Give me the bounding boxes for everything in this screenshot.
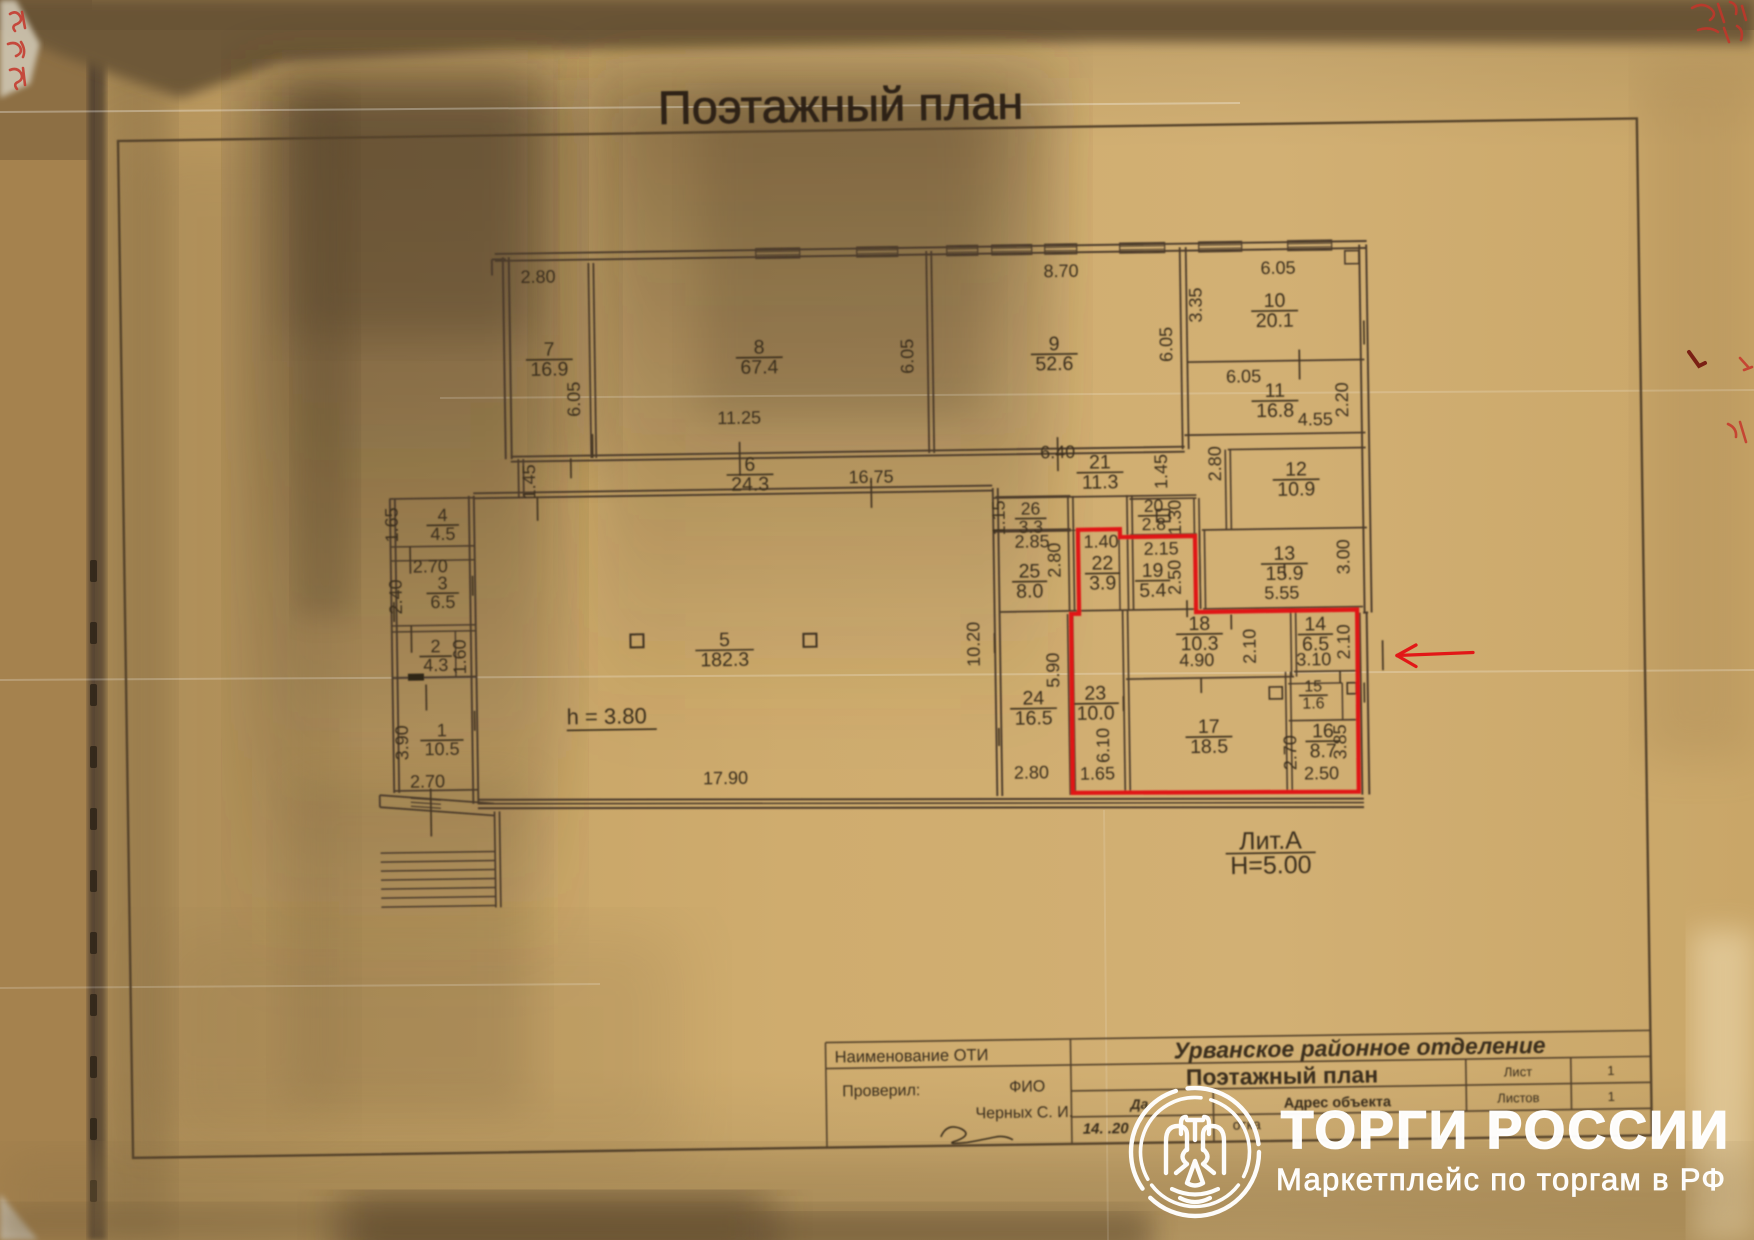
svg-text:ФИО: ФИО [1009, 1078, 1045, 1096]
svg-text:10: 10 [1263, 290, 1285, 312]
svg-text:2.80: 2.80 [520, 267, 555, 288]
svg-text:6.10: 6.10 [1093, 728, 1114, 763]
svg-text:19: 19 [1141, 560, 1163, 582]
svg-text:1.30: 1.30 [1164, 500, 1185, 535]
svg-text:2.10: 2.10 [1239, 629, 1260, 664]
svg-text:2.15: 2.15 [1143, 538, 1178, 559]
svg-text:8.0: 8.0 [1016, 580, 1044, 602]
svg-text:9: 9 [1049, 333, 1060, 355]
svg-text:21: 21 [1089, 451, 1111, 473]
svg-text:6: 6 [744, 454, 755, 476]
svg-text:1.65: 1.65 [381, 507, 402, 542]
svg-text:1.40: 1.40 [1083, 531, 1118, 552]
svg-text:3.10: 3.10 [1296, 649, 1331, 670]
svg-text:2: 2 [430, 636, 440, 656]
svg-text:24: 24 [1022, 687, 1044, 709]
svg-text:3.35: 3.35 [1185, 287, 1206, 322]
svg-text:Маркетплейс по торгам в РФ: Маркетплейс по торгам в РФ [1276, 1162, 1725, 1197]
svg-text:2.10: 2.10 [1333, 624, 1354, 659]
svg-text:3.85: 3.85 [1330, 724, 1351, 759]
svg-text:13: 13 [1273, 543, 1295, 565]
svg-text:18.5: 18.5 [1190, 736, 1228, 759]
svg-text:Поэтажный план: Поэтажный план [657, 76, 1023, 134]
svg-text:11.3: 11.3 [1082, 471, 1119, 494]
svg-text:1.6: 1.6 [1302, 695, 1325, 712]
svg-text:2.70: 2.70 [410, 771, 445, 792]
svg-text:h = 3.80: h = 3.80 [566, 703, 647, 729]
svg-text:6.05: 6.05 [564, 382, 585, 417]
svg-text:3.00: 3.00 [1333, 539, 1354, 574]
svg-text:6.5: 6.5 [430, 592, 455, 612]
svg-text:Наименование ОТИ: Наименование ОТИ [835, 1046, 989, 1066]
svg-text:1.60: 1.60 [449, 639, 470, 674]
svg-text:17.90: 17.90 [703, 768, 748, 789]
svg-text:Урванское районное отделение: Урванское районное отделение [1173, 1032, 1546, 1064]
svg-text:10.9: 10.9 [1277, 478, 1315, 501]
svg-text:10.20: 10.20 [963, 622, 984, 667]
svg-text:20.1: 20.1 [1256, 310, 1294, 333]
svg-text:14: 14 [1304, 613, 1326, 635]
svg-text:12: 12 [1285, 458, 1307, 480]
svg-text:2.40: 2.40 [386, 579, 407, 614]
svg-text:3.9: 3.9 [1089, 572, 1116, 594]
svg-text:5.4: 5.4 [1139, 579, 1167, 601]
svg-text:7: 7 [544, 339, 555, 361]
svg-text:23: 23 [1084, 682, 1106, 704]
svg-text:2.70: 2.70 [413, 556, 448, 577]
svg-text:5.90: 5.90 [1043, 653, 1064, 688]
svg-text:18: 18 [1188, 613, 1210, 635]
svg-text:16.75: 16.75 [848, 467, 893, 488]
svg-text:8: 8 [754, 336, 765, 358]
svg-text:6.05: 6.05 [897, 339, 918, 374]
svg-text:5: 5 [719, 629, 730, 651]
svg-text:1.45: 1.45 [519, 464, 540, 499]
svg-text:6.40: 6.40 [1040, 442, 1075, 463]
svg-text:25: 25 [1018, 560, 1040, 582]
svg-text:8.70: 8.70 [1043, 261, 1078, 282]
svg-text:5.55: 5.55 [1264, 583, 1299, 604]
svg-text:1.15: 1.15 [988, 500, 1009, 535]
svg-text:24.3: 24.3 [731, 473, 769, 496]
svg-text:4: 4 [437, 505, 447, 525]
svg-text:52.6: 52.6 [1035, 353, 1073, 376]
svg-text:2.80: 2.80 [1205, 446, 1226, 481]
svg-text:22: 22 [1091, 552, 1113, 574]
svg-text:Поэтажный план: Поэтажный план [1186, 1061, 1379, 1090]
svg-text:2.8: 2.8 [1141, 514, 1166, 534]
svg-text:10.5: 10.5 [424, 739, 459, 760]
svg-text:10.0: 10.0 [1076, 702, 1114, 725]
svg-text:2.70: 2.70 [1280, 735, 1301, 770]
svg-text:14. .20: 14. .20 [1083, 1120, 1130, 1138]
svg-text:6.05: 6.05 [1156, 327, 1177, 362]
svg-text:1.45: 1.45 [1151, 454, 1172, 489]
svg-text:Черных С. И.: Черных С. И. [975, 1104, 1073, 1122]
svg-text:16.8: 16.8 [1256, 400, 1294, 423]
svg-text:17: 17 [1198, 716, 1220, 738]
svg-text:2.50: 2.50 [1164, 560, 1185, 595]
svg-text:2.80: 2.80 [1044, 542, 1065, 577]
svg-text:2.80: 2.80 [1014, 762, 1049, 783]
svg-text:Проверил:: Проверил: [842, 1082, 920, 1100]
svg-text:4.90: 4.90 [1179, 650, 1214, 671]
svg-text:11: 11 [1265, 380, 1286, 402]
svg-text:182.3: 182.3 [700, 649, 749, 672]
svg-text:11.25: 11.25 [717, 407, 761, 428]
svg-text:4.55: 4.55 [1298, 409, 1333, 430]
svg-text:4.3: 4.3 [423, 655, 448, 675]
svg-text:16.9: 16.9 [530, 358, 568, 381]
svg-text:Н=5.00: Н=5.00 [1230, 851, 1312, 880]
svg-text:26: 26 [1021, 498, 1041, 518]
svg-text:1: 1 [437, 720, 447, 740]
svg-text:Лист: Лист [1504, 1064, 1533, 1079]
svg-text:16.5: 16.5 [1015, 707, 1053, 730]
svg-text:2.50: 2.50 [1304, 763, 1339, 784]
svg-text:2.20: 2.20 [1332, 382, 1353, 417]
svg-text:6.05: 6.05 [1226, 366, 1261, 387]
svg-text:20: 20 [1144, 496, 1164, 516]
svg-text:3.90: 3.90 [392, 725, 413, 760]
svg-text:4.5: 4.5 [430, 524, 455, 544]
svg-text:1: 1 [1607, 1063, 1614, 1078]
svg-text:67.4: 67.4 [740, 356, 778, 379]
svg-text:15: 15 [1304, 678, 1322, 695]
svg-text:1.65: 1.65 [1080, 763, 1115, 784]
svg-text:ТОРГИ РОССИИ: ТОРГИ РОССИИ [1281, 1101, 1728, 1160]
svg-text:6.05: 6.05 [1260, 258, 1295, 279]
